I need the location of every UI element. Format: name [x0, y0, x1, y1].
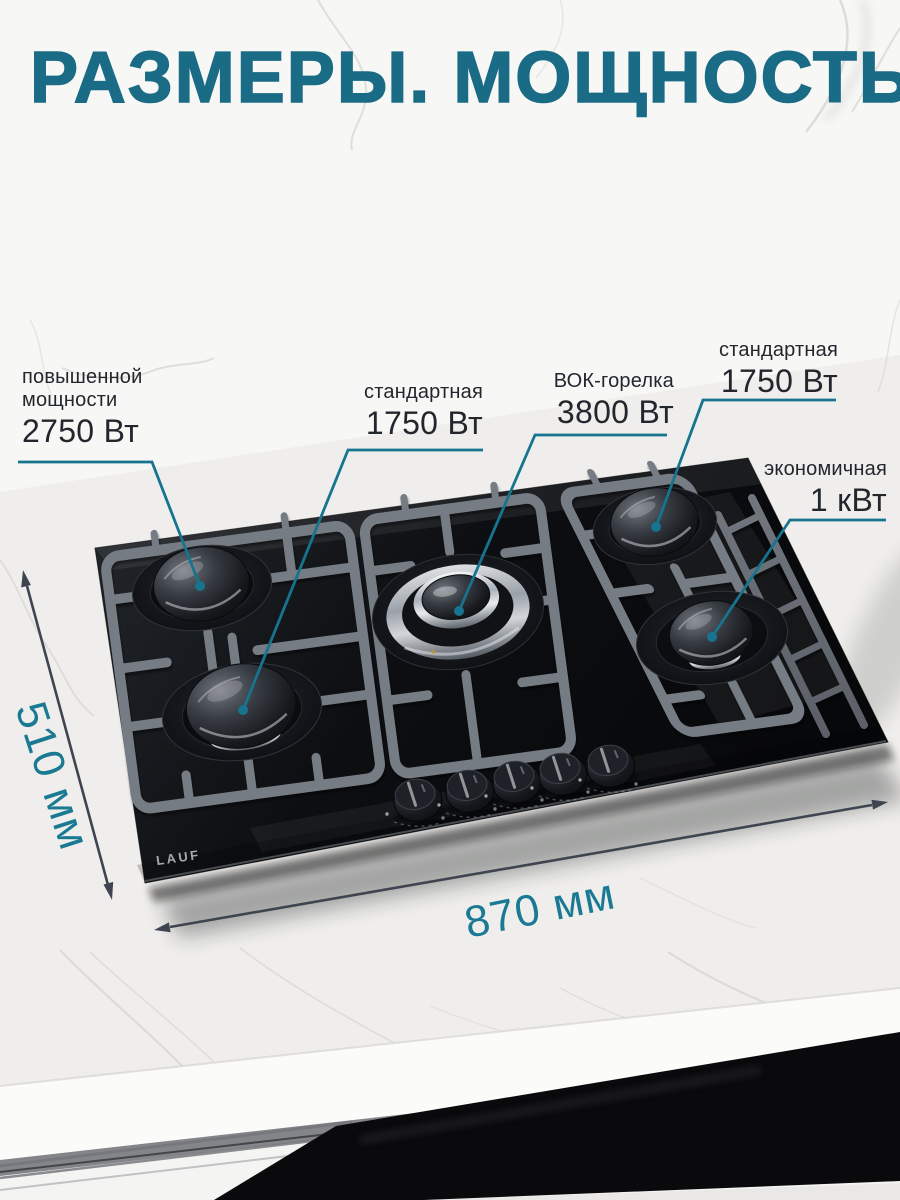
burner-name: повышенной: [22, 366, 143, 389]
burner-power-value: 1 кВт: [764, 482, 887, 519]
burner-name: стандартная: [364, 381, 483, 404]
burner-power-value: 1750 Вт: [719, 363, 838, 400]
callout-label-standard-right: стандартная 1750 Вт: [719, 339, 838, 400]
burner-power-value: 2750 Вт: [22, 413, 143, 450]
callout-dot-standard-left: [238, 705, 248, 715]
page-title: РАЗМЕРЫ. МОЩНОСТЬ: [30, 42, 900, 114]
callout-dot-economy: [707, 632, 717, 642]
callout-label-wok: ВОК-горелка 3800 Вт: [554, 370, 674, 431]
burner-power-value: 3800 Вт: [554, 394, 674, 431]
burner-name: экономичная: [764, 458, 887, 481]
burner-name: мощности: [22, 389, 143, 412]
callout-dot-high-power: [195, 581, 205, 591]
product-scene: [0, 0, 900, 1200]
burner-name: ВОК-горелка: [554, 370, 674, 393]
burner-power-value: 1750 Вт: [364, 405, 483, 442]
callout-label-standard-left: стандартная 1750 Вт: [364, 381, 483, 442]
callout-dot-wok: [454, 606, 464, 616]
callout-dot-standard-right: [651, 522, 661, 532]
callout-label-high-power: повышенной мощности 2750 Вт: [22, 366, 143, 450]
burner-name: стандартная: [719, 339, 838, 362]
callout-label-economy: экономичная 1 кВт: [764, 458, 887, 519]
infographic-page: РАЗМЕРЫ. МОЩНОСТЬ повышенной мощности 27…: [0, 0, 900, 1200]
